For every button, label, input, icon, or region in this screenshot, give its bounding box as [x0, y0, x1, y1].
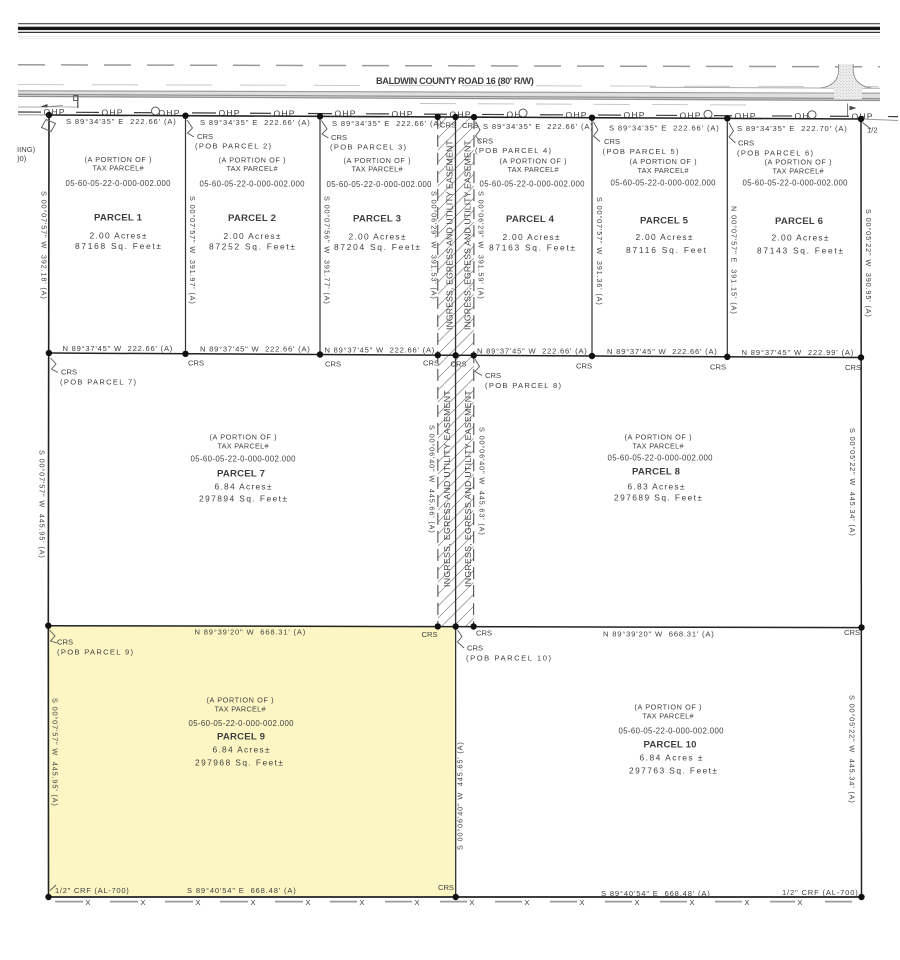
- svg-text:S 00°07'57" W 445.95' (A): S 00°07'57" W 445.95' (A): [51, 698, 60, 806]
- svg-text:2.00 Acres±: 2.00 Acres±: [772, 233, 829, 243]
- svg-text:S 00°07'56" W 391.77' (A): S 00°07'56" W 391.77' (A): [323, 196, 332, 304]
- svg-text:IING): IING): [17, 145, 36, 154]
- svg-text:CRS: CRS: [61, 368, 77, 377]
- svg-text:PARCEL 1: PARCEL 1: [94, 213, 143, 224]
- svg-text:CRS: CRS: [576, 362, 592, 371]
- svg-text:87163 Sq. Feet±: 87163 Sq. Feet±: [489, 243, 575, 253]
- svg-text:S 00°07'57" W 391.36' (A): S 00°07'57" W 391.36' (A): [595, 197, 604, 305]
- svg-text:87204 Sq. Feet±: 87204 Sq. Feet±: [334, 242, 420, 252]
- svg-text:05-60-05-22-0-000-002.000: 05-60-05-22-0-000-002.000: [608, 454, 714, 463]
- svg-text:1/2" CRF (AL-700): 1/2" CRF (AL-700): [55, 886, 129, 895]
- svg-text:PARCEL 2: PARCEL 2: [228, 213, 276, 224]
- svg-text:05-60-05-22-0-000-002.000: 05-60-05-22-0-000-002.000: [189, 719, 295, 728]
- svg-text:X: X: [744, 898, 749, 907]
- svg-text:(POB PARCEL 10): (POB PARCEL 10): [466, 654, 551, 663]
- svg-text:PARCEL 6: PARCEL 6: [775, 216, 823, 227]
- svg-text:X: X: [195, 898, 200, 907]
- svg-text:S 00°06'29" W 391.59' (A): S 00°06'29" W 391.59' (A): [477, 191, 486, 299]
- svg-text:PARCEL 3: PARCEL 3: [353, 214, 401, 225]
- svg-text:X: X: [140, 898, 145, 907]
- svg-text:CRS: CRS: [325, 360, 341, 369]
- svg-text:N 89°37'45" W 222.66' (A): N 89°37'45" W 222.66' (A): [325, 345, 435, 354]
- svg-text:CRS: CRS: [57, 638, 73, 647]
- svg-text:CRS: CRS: [477, 137, 493, 146]
- svg-text:N 89°39'20" W 668.31' (A): N 89°39'20" W 668.31' (A): [603, 629, 714, 638]
- svg-text:X: X: [250, 898, 255, 907]
- svg-text:05-60-05-22-0-000-002.000: 05-60-05-22-0-000-002.000: [619, 727, 725, 736]
- svg-text:INGRESS, EGRESS AND UTILITY EA: INGRESS, EGRESS AND UTILITY EASEMENT: [463, 140, 473, 330]
- svg-text:OHP: OHP: [735, 111, 756, 121]
- svg-text:S 00°07'57" W 391.97' (A): S 00°07'57" W 391.97' (A): [188, 196, 197, 304]
- svg-text:INGRESS, EGRESS AND UTILITY EA: INGRESS, EGRESS AND UTILITY EASEMENT: [442, 390, 452, 587]
- svg-text:INGRESS, EGRESS AND UTILITY EA: INGRESS, EGRESS AND UTILITY EASEMENT: [445, 140, 455, 330]
- svg-text:TAX PARCEL#: TAX PARCEL#: [352, 165, 404, 174]
- svg-text:2.00 Acres±: 2.00 Acres±: [503, 232, 560, 242]
- svg-text:CRS: CRS: [440, 121, 456, 130]
- svg-text:05-60-05-22-0-000-002.000: 05-60-05-22-0-000-002.000: [327, 180, 433, 189]
- svg-text:N 00°07'57" E 391.15' (A): N 00°07'57" E 391.15' (A): [730, 206, 739, 314]
- svg-text:S 89°34'35" E 222.70' (A): S 89°34'35" E 222.70' (A): [737, 124, 847, 133]
- svg-text:S 00°07'57" W 392.18' (A): S 00°07'57" W 392.18' (A): [40, 191, 49, 299]
- svg-text:2.00 Acres±: 2.00 Acres±: [636, 232, 693, 242]
- svg-text:2.00 Acres±: 2.00 Acres±: [224, 231, 281, 241]
- svg-text:297968 Sq. Feet±: 297968 Sq. Feet±: [195, 758, 283, 768]
- svg-text:CRS: CRS: [604, 137, 620, 146]
- svg-text:TAX PARCEL#: TAX PARCEL#: [227, 164, 279, 173]
- svg-text:297763 Sq. Feet±: 297763 Sq. Feet±: [629, 766, 717, 776]
- svg-text:TAX PARCEL#: TAX PARCEL#: [633, 442, 685, 451]
- svg-text:05-60-05-22-0-000-002.000: 05-60-05-22-0-000-002.000: [200, 180, 306, 189]
- svg-text:CRS: CRS: [423, 359, 439, 368]
- svg-text:N 89°37'45" W 222.66' (A): N 89°37'45" W 222.66' (A): [200, 345, 310, 354]
- svg-text:S 00°06'40" W 445.63' (A): S 00°06'40" W 445.63' (A): [478, 427, 487, 535]
- svg-text:CRS: CRS: [476, 629, 492, 638]
- svg-text:(A PORTION OF ): (A PORTION OF ): [207, 696, 274, 705]
- svg-text:TAX PARCEL#: TAX PARCEL#: [643, 712, 695, 721]
- svg-text:PARCEL 4: PARCEL 4: [506, 214, 555, 225]
- svg-text:TAX PARCEL#: TAX PARCEL#: [638, 166, 690, 175]
- svg-text:CRS: CRS: [422, 630, 438, 639]
- svg-text:CRS: CRS: [438, 883, 454, 892]
- svg-text:X: X: [414, 898, 419, 907]
- svg-text:(A PORTION OF ): (A PORTION OF ): [630, 157, 697, 166]
- svg-text:TAX PARCEL#: TAX PARCEL#: [93, 164, 145, 173]
- svg-text:N 89°39'20" W 668.31' (A): N 89°39'20" W 668.31' (A): [195, 628, 306, 637]
- svg-text:05-60-05-22-0-000-002.000: 05-60-05-22-0-000-002.000: [191, 455, 297, 464]
- svg-text:05-60-05-22-0-000-002.000: 05-60-05-22-0-000-002.000: [480, 180, 586, 189]
- svg-text:X: X: [634, 898, 639, 907]
- svg-text:BALDWIN COUNTY ROAD 16 (80' R/: BALDWIN COUNTY ROAD 16 (80' R/W): [376, 76, 534, 86]
- svg-text:PARCEL 5: PARCEL 5: [640, 216, 689, 227]
- svg-text:CRS: CRS: [710, 363, 726, 372]
- svg-text:S 89°34'35" E 222.66' (A): S 89°34'35" E 222.66' (A): [66, 117, 176, 126]
- svg-text:05-60-05-22-0-000-002.000: 05-60-05-22-0-000-002.000: [743, 179, 849, 188]
- svg-text:87116 Sq. Feet: 87116 Sq. Feet: [626, 245, 707, 255]
- svg-text:N 89°37'45" W 222.99' (A): N 89°37'45" W 222.99' (A): [742, 348, 854, 357]
- svg-text:S 89°34'35" E 222.66' (A): S 89°34'35" E 222.66' (A): [200, 118, 310, 127]
- svg-text:87143 Sq. Feet±: 87143 Sq. Feet±: [757, 246, 843, 256]
- svg-text:S 00°07'57" W 445.95' (A): S 00°07'57" W 445.95' (A): [38, 450, 47, 558]
- svg-text:PARCEL 8: PARCEL 8: [632, 467, 681, 478]
- svg-text:S 00°06'40" W 445.66' (A): S 00°06'40" W 445.66' (A): [428, 425, 437, 533]
- svg-text:S 00°06'40" W 445.65' (A): S 00°06'40" W 445.65' (A): [456, 742, 465, 850]
- svg-text:(A PORTION OF ): (A PORTION OF ): [210, 433, 277, 442]
- svg-text:05-60-05-22-0-000-002.000: 05-60-05-22-0-000-002.000: [611, 179, 717, 188]
- svg-text:X: X: [689, 898, 694, 907]
- svg-text:CRS: CRS: [467, 644, 483, 653]
- svg-text:CRS: CRS: [331, 133, 347, 142]
- svg-text:6.83 Acres±: 6.83 Acres±: [628, 482, 685, 492]
- svg-text:S 00°06'29" W 391.53' (A): S 00°06'29" W 391.53' (A): [430, 191, 439, 299]
- svg-text:TAX PARCEL#: TAX PARCEL#: [773, 167, 825, 176]
- svg-text:2.00 Acres±: 2.00 Acres±: [90, 231, 147, 241]
- svg-text:TAX PARCEL#: TAX PARCEL#: [218, 442, 270, 451]
- svg-text:X: X: [359, 898, 364, 907]
- svg-text:S 89°40'54" E 668.48' (A): S 89°40'54" E 668.48' (A): [601, 889, 710, 898]
- svg-text:INGRESS, EGRESS AND UTILITY EA: INGRESS, EGRESS AND UTILITY EASEMENT: [463, 390, 473, 587]
- svg-text:87168 Sq. Feet±: 87168 Sq. Feet±: [75, 241, 161, 251]
- svg-text:CRS: CRS: [485, 371, 501, 380]
- svg-text:)0): )0): [17, 154, 27, 163]
- svg-text:S 00°05'22" W 390.95' (A): S 00°05'22" W 390.95' (A): [864, 209, 873, 317]
- svg-text:N 89°37'45" W 222.66' (A): N 89°37'45" W 222.66' (A): [607, 347, 717, 356]
- svg-text:297689 Sq. Feet±: 297689 Sq. Feet±: [614, 493, 702, 503]
- svg-text:N 89°37'45" W 222.66' (A): N 89°37'45" W 222.66' (A): [63, 344, 173, 353]
- svg-text:(A PORTION OF ): (A PORTION OF ): [765, 158, 832, 167]
- svg-text:297894 Sq. Feet±: 297894 Sq. Feet±: [199, 494, 287, 504]
- svg-text:S 00°05'22" W 445.34' (A): S 00°05'22" W 445.34' (A): [848, 428, 857, 536]
- svg-text:1/2" CRF (AL-700): 1/2" CRF (AL-700): [782, 888, 858, 897]
- svg-text:PARCEL 7: PARCEL 7: [217, 469, 265, 480]
- svg-text:CRS: CRS: [451, 360, 467, 369]
- svg-text:05-60-05-22-0-000-002.000: 05-60-05-22-0-000-002.000: [66, 179, 172, 188]
- svg-text:2.00 Acres±: 2.00 Acres±: [349, 232, 406, 242]
- svg-text:CRS: CRS: [188, 359, 204, 368]
- svg-text:PARCEL 9: PARCEL 9: [217, 732, 265, 743]
- svg-text:X: X: [305, 898, 310, 907]
- svg-text:6.84 Acres±: 6.84 Acres±: [215, 482, 272, 492]
- svg-text:CRS: CRS: [197, 132, 213, 141]
- svg-text:CRS: CRS: [738, 139, 754, 148]
- svg-text:TAX PARCEL#: TAX PARCEL#: [215, 705, 267, 714]
- svg-text:PARCEL 10: PARCEL 10: [644, 740, 697, 751]
- svg-text:S 89°34'35" E 222.66' (A): S 89°34'35" E 222.66' (A): [332, 119, 442, 128]
- svg-text:CRS: CRS: [845, 363, 861, 372]
- svg-text:S 00°05'22" W 445.34' (A): S 00°05'22" W 445.34' (A): [848, 695, 857, 803]
- svg-text:X: X: [85, 898, 90, 907]
- svg-text:87252 Sq. Feet±: 87252 Sq. Feet±: [209, 242, 295, 252]
- svg-text:N 89°37'45" W 222.66' (A): N 89°37'45" W 222.66' (A): [477, 346, 587, 355]
- svg-text:TAX PARCEL#: TAX PARCEL#: [508, 165, 560, 174]
- svg-text:S 89°34'35" E 222.66' (A): S 89°34'35" E 222.66' (A): [483, 122, 593, 131]
- svg-text:6.84 Acres±: 6.84 Acres±: [213, 745, 270, 755]
- svg-text:(A PORTION OF ): (A PORTION OF ): [625, 433, 692, 442]
- svg-text:S 89°34'35" E 222.66' (A): S 89°34'35" E 222.66' (A): [609, 124, 719, 133]
- svg-text:X: X: [469, 898, 474, 907]
- svg-text:S 89°40'54" E 668.48' (A): S 89°40'54" E 668.48' (A): [187, 886, 296, 895]
- svg-text:(A PORTION OF ): (A PORTION OF ): [635, 703, 702, 712]
- svg-text:X: X: [579, 898, 584, 907]
- svg-text:X: X: [797, 898, 802, 907]
- svg-text:X: X: [524, 898, 529, 907]
- svg-text:OHP: OHP: [680, 111, 701, 121]
- svg-text:CRS: CRS: [844, 628, 860, 637]
